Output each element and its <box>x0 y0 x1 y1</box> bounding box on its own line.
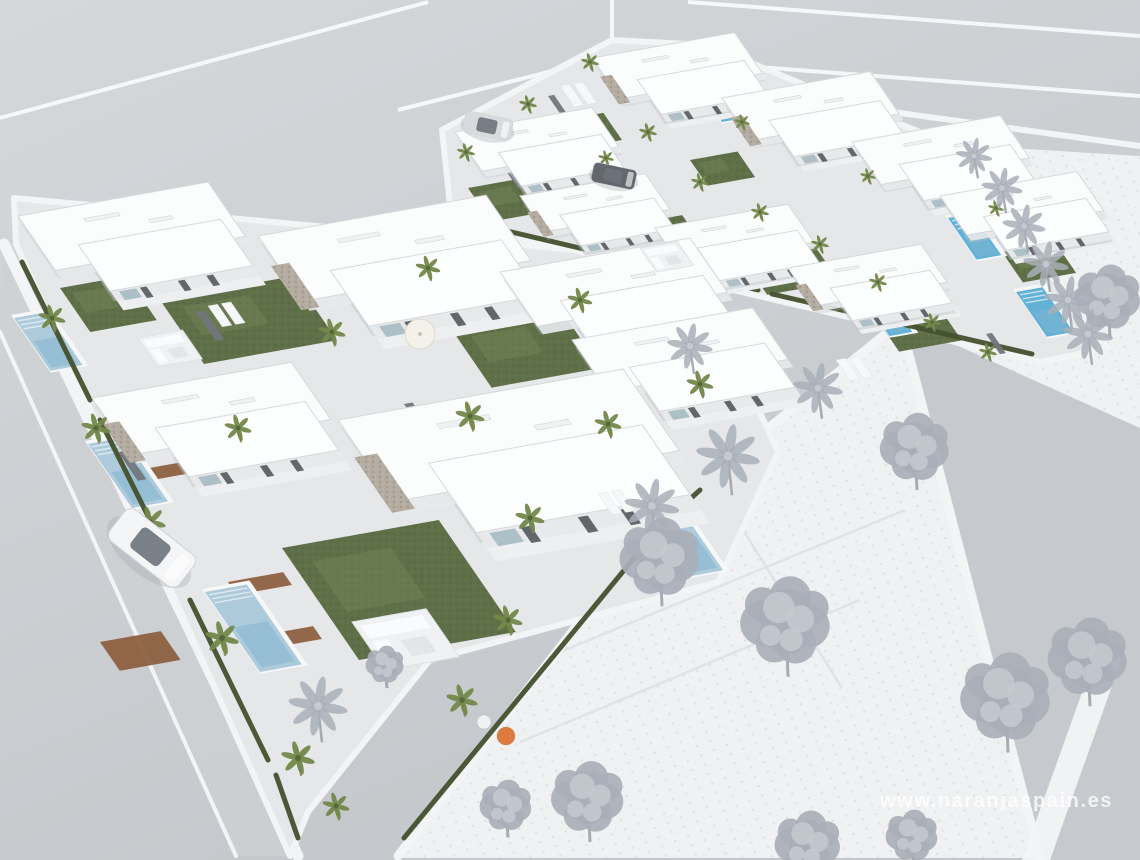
villa-development-3d-render <box>0 0 1140 860</box>
render-viewport: www.naranjaspain.es <box>0 0 1140 860</box>
